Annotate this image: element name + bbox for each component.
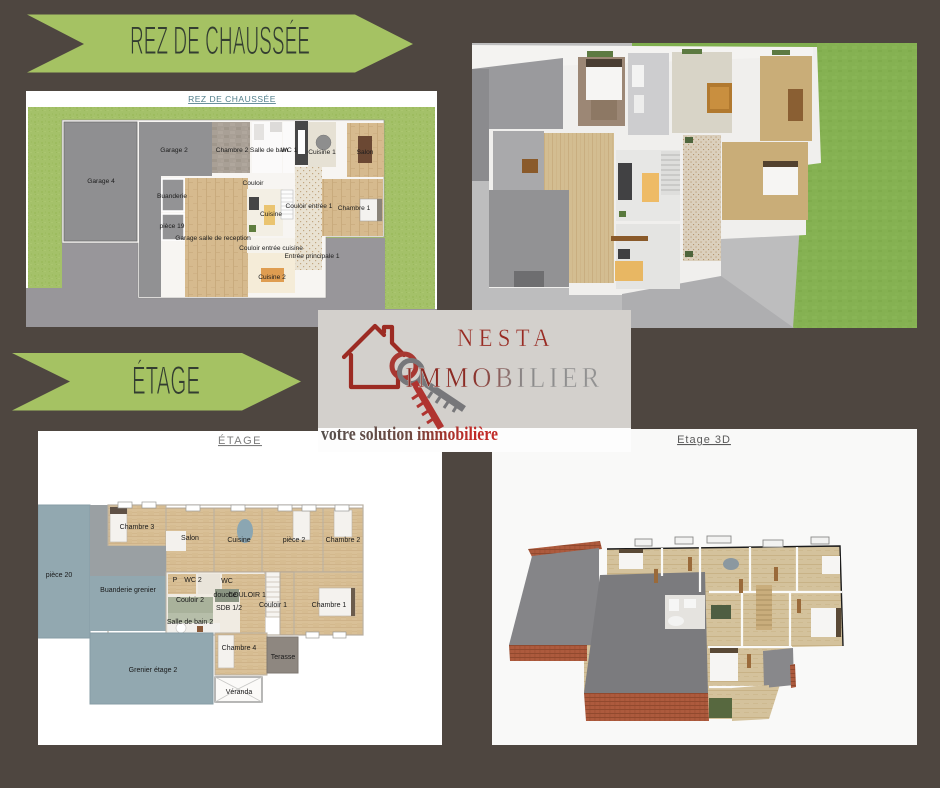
svg-text:WC 1: WC 1 xyxy=(281,147,298,154)
svg-text:Salle de bain 2: Salle de bain 2 xyxy=(167,619,213,626)
svg-text:pièce 2: pièce 2 xyxy=(283,537,306,544)
svg-text:WC 2: WC 2 xyxy=(184,577,202,584)
svg-text:Chambre 4: Chambre 4 xyxy=(222,645,257,652)
svg-text:Cuisine 1: Cuisine 1 xyxy=(308,149,336,156)
svg-text:Chambre 2: Chambre 2 xyxy=(216,147,249,154)
svg-text:WC: WC xyxy=(221,578,233,585)
svg-text:REZ DE CHAUSSÉE: REZ DE CHAUSSÉE xyxy=(188,94,276,104)
svg-text:Chambre 1: Chambre 1 xyxy=(338,205,371,212)
svg-text:Entrée principale 1: Entrée principale 1 xyxy=(285,253,340,260)
svg-text:Chambre 2: Chambre 2 xyxy=(326,537,361,544)
svg-text:Couloir 2: Couloir 2 xyxy=(176,597,204,604)
svg-text:pièce 19: pièce 19 xyxy=(160,223,185,230)
svg-text:Cuisine 2: Cuisine 2 xyxy=(258,274,286,281)
svg-text:Garage salle de reception: Garage salle de reception xyxy=(175,235,251,242)
svg-text:Cuisine: Cuisine xyxy=(227,537,250,544)
svg-text:Cuisine: Cuisine xyxy=(260,211,282,218)
svg-text:Grenier étage 2: Grenier étage 2 xyxy=(129,667,178,674)
svg-text:REZ DE CHAUSSÉE: REZ DE CHAUSSÉE xyxy=(130,18,310,63)
svg-text:ÉTAGE: ÉTAGE xyxy=(132,358,200,403)
svg-text:Chambre 3: Chambre 3 xyxy=(120,524,155,531)
svg-text:NESTA: NESTA xyxy=(457,325,555,352)
svg-text:Etage 3D: Etage 3D xyxy=(677,434,731,446)
svg-text:Couloir: Couloir xyxy=(243,180,265,187)
svg-text:Garage 4: Garage 4 xyxy=(87,178,115,185)
svg-text:pièce 20: pièce 20 xyxy=(46,572,73,579)
svg-text:Véranda: Véranda xyxy=(226,689,253,696)
svg-text:Couloir 1: Couloir 1 xyxy=(259,602,287,609)
svg-text:Salon: Salon xyxy=(357,149,374,156)
svg-text:ÉTAGE: ÉTAGE xyxy=(218,434,262,447)
svg-text:SDB 1/2: SDB 1/2 xyxy=(216,605,242,612)
svg-text:Garage 2: Garage 2 xyxy=(160,147,188,154)
svg-text:Buanderie: Buanderie xyxy=(157,193,187,200)
svg-text:votre solution immobilière: votre solution immobilière xyxy=(321,424,498,445)
svg-text:Salon: Salon xyxy=(181,535,199,542)
svg-text:Chambre 1: Chambre 1 xyxy=(312,602,347,609)
svg-text:Couloir entrée 1: Couloir entrée 1 xyxy=(286,203,333,210)
svg-text:Buanderie grenier: Buanderie grenier xyxy=(100,587,156,594)
svg-text:Couloir entrée cuisine: Couloir entrée cuisine xyxy=(239,245,303,252)
svg-text:COULOIR 1: COULOIR 1 xyxy=(228,592,266,599)
svg-text:IMMOBILIER: IMMOBILIER xyxy=(405,363,603,394)
svg-text:Terasse: Terasse xyxy=(271,654,296,661)
svg-text:P: P xyxy=(173,577,178,584)
